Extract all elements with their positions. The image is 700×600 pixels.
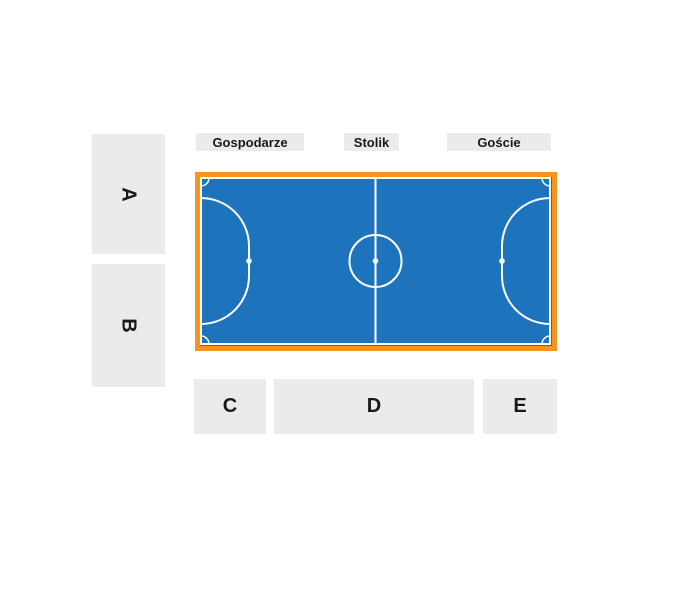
futsal-court — [195, 172, 557, 351]
court-graphic — [195, 172, 557, 351]
section-a-label: A — [117, 187, 140, 201]
hosts-bench-label: Gospodarze — [196, 133, 304, 151]
section-e[interactable]: E — [483, 379, 557, 434]
section-b[interactable]: B — [92, 264, 165, 387]
penalty-spot-right — [499, 258, 505, 264]
section-d-label: D — [367, 395, 381, 418]
section-c-label: C — [223, 395, 237, 418]
section-a[interactable]: A — [92, 134, 165, 254]
section-b-label: B — [117, 318, 140, 332]
center-spot — [373, 258, 379, 264]
venue-seating-map: Gospodarze Stolik Goście A B C D — [0, 0, 700, 600]
section-d[interactable]: D — [274, 379, 474, 434]
officials-table-label: Stolik — [344, 133, 399, 151]
guests-bench-label: Goście — [447, 133, 551, 151]
penalty-spot-left — [246, 258, 252, 264]
section-c[interactable]: C — [194, 379, 266, 434]
section-e-label: E — [513, 395, 526, 418]
